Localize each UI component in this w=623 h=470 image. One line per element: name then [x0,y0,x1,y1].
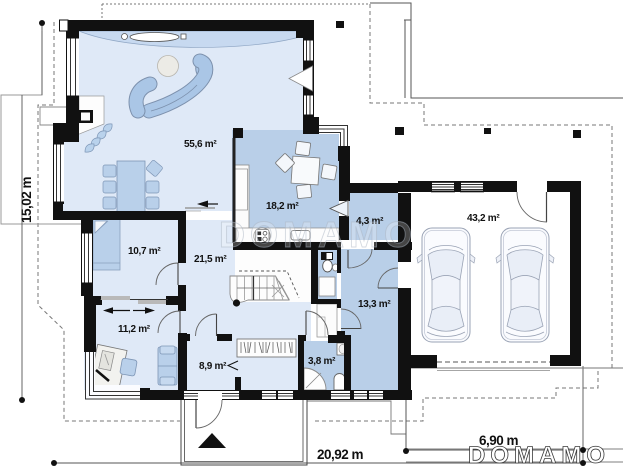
svg-text:43,2 m²: 43,2 m² [467,213,500,224]
svg-text:11,2 m²: 11,2 m² [118,324,151,335]
svg-text:DOMAMO: DOMAMO [468,442,610,469]
svg-text:8,9 m²: 8,9 m² [199,361,227,372]
svg-text:DOMAMO: DOMAMO [219,214,417,255]
svg-text:21,5 m²: 21,5 m² [194,254,227,265]
svg-text:13,3 m²: 13,3 m² [358,299,391,310]
svg-text:3,8 m²: 3,8 m² [308,356,336,367]
svg-text:55,6 m²: 55,6 m² [184,139,217,150]
svg-text:15,02 m: 15,02 m [19,176,34,223]
svg-text:18,2 m²: 18,2 m² [266,201,299,212]
svg-text:20,92 m: 20,92 m [317,447,364,462]
svg-text:10,7 m²: 10,7 m² [128,246,161,257]
